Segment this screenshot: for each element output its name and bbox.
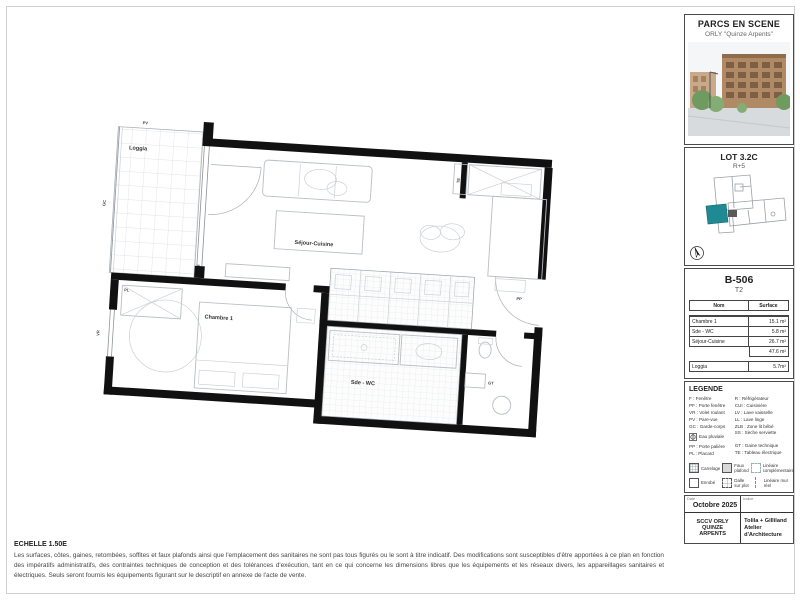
- surface-col-nom: Nom: [690, 301, 749, 310]
- washer: [492, 396, 511, 415]
- loggia-floor: [109, 127, 203, 278]
- north-arrow-icon: [689, 245, 705, 261]
- surface-row-sde: Sde - WC 5.8 m²: [689, 327, 789, 337]
- swatch-enrobe: Enrobé: [689, 477, 720, 488]
- coffee-table: [274, 211, 364, 254]
- unit-type: T2: [689, 287, 789, 294]
- plant-sketch: [419, 225, 461, 253]
- tag-pv: PV: [143, 120, 149, 125]
- door-arc-entry: [493, 277, 542, 326]
- bathroom-floor: [322, 326, 462, 424]
- surface-total-row: 47.6 m²: [689, 347, 789, 357]
- enrobe-swatch-icon: [689, 478, 699, 488]
- lot-title: LOT 3.2C: [688, 152, 790, 162]
- lineaire-mur-reel-swatch-icon: [755, 477, 758, 488]
- surface-total: 47.6 m²: [749, 347, 789, 357]
- indice-cell: Indice: [741, 496, 793, 512]
- surface-col-surface: Surface: [749, 301, 788, 310]
- unit-id: B-506: [689, 274, 789, 286]
- floor-plan-svg: PV GC VR Loggia: [82, 104, 582, 474]
- notes-block: ECHELLE 1.50E Les surfaces, côtes, gaine…: [14, 541, 664, 581]
- unit-panel: B-506 T2 Nom Surface Chambre 1 15.1 m² S…: [684, 268, 794, 379]
- wall-top: [202, 138, 552, 168]
- legend-ep: Eau pluviale: [689, 433, 732, 441]
- project-subtitle: ORLY "Quinze Arpents": [688, 31, 790, 38]
- project-header: PARCS EN SCENE ORLY "Quinze Arpents": [684, 14, 794, 145]
- surface-row-loggia: Loggia 5.7m²: [689, 361, 789, 372]
- tag-gc: GC: [101, 200, 106, 206]
- indice-label: Indice: [743, 497, 753, 501]
- sofa: [262, 160, 372, 203]
- architect-name: Tolila + Gilliland Atelier d'Architectur…: [744, 515, 790, 541]
- swatch-dalle-sur-plot: Dalle sur plot: [722, 477, 748, 488]
- surface-row-sejour: Séjour-Cuisine 26.7 m²: [689, 337, 789, 347]
- client-name: SCCV ORLY QUINZE ARPENTS: [688, 515, 737, 541]
- drawing-sheet: PV GC VR Loggia: [0, 0, 800, 600]
- tag-vr-chambre: VR: [95, 330, 100, 336]
- legend-col-left: F : Fenêtre PF : Porte fenêtre VR : Vole…: [689, 396, 732, 458]
- surface-table: Nom Surface Chambre 1 15.1 m² Sde - WC 5…: [689, 300, 789, 372]
- date-cell: Date Octobre 2025: [685, 496, 741, 512]
- floor-plan: PV GC VR Loggia: [82, 104, 582, 474]
- swatch-lineaire-mur-reel: Linéaire mur réel: [751, 477, 794, 488]
- disclaimer-text: Les surfaces, côtes, gaines, retombées, …: [14, 551, 664, 581]
- sidebar: PARCS EN SCENE ORLY "Quinze Arpents": [684, 14, 794, 546]
- door-arc-chambre: [284, 290, 314, 320]
- door-arc-wc: [494, 337, 524, 367]
- gt-duct: [465, 373, 486, 388]
- nightstand: [296, 308, 315, 323]
- dalle-sur-plot-swatch-icon: [722, 478, 732, 488]
- faux-plafond-swatch-icon: [722, 463, 732, 473]
- swatch-carrelage: Carrelage: [689, 463, 720, 473]
- door-arc-loggia: [208, 165, 261, 218]
- keyplan-unit-highlight: [706, 204, 728, 224]
- lot-panel: LOT 3.2C R+5: [684, 147, 794, 266]
- wall-right-lower: [528, 327, 543, 437]
- swatch-faux-plafond: Faux plafond: [722, 463, 748, 473]
- rainwater-icon: [689, 433, 697, 441]
- date-label: Date: [687, 497, 695, 501]
- dining-table: [488, 196, 547, 279]
- tag-te: TE: [456, 177, 461, 183]
- tag-gt: GT: [488, 380, 494, 385]
- scale-label: ECHELLE 1.50E: [14, 541, 664, 548]
- lot-level: R+5: [688, 163, 790, 170]
- room-label-loggia: Loggia: [129, 145, 148, 152]
- tag-pl: PL: [124, 287, 130, 292]
- tag-pp: PP: [516, 296, 522, 301]
- project-render-image: [688, 42, 790, 136]
- project-title: PARCS EN SCENE: [688, 19, 790, 29]
- legend-title: LEGENDE: [689, 386, 789, 393]
- title-block: Date Octobre 2025 Indice SCCV ORLY QUINZ…: [684, 495, 794, 544]
- lineaire-complementaire-swatch-icon: [751, 463, 761, 473]
- legend-panel: LEGENDE F : Fenêtre PF : Porte fenêtre V…: [684, 381, 794, 493]
- surface-row-chambre: Chambre 1 15.1 m²: [689, 316, 789, 327]
- carrelage-swatch-icon: [689, 463, 699, 473]
- room-label-sejour: Séjour-Cuisine: [294, 240, 333, 248]
- legend-swatches: Carrelage Faux plafond Linéaire compléme…: [689, 463, 789, 488]
- date-value: Octobre 2025: [688, 502, 742, 510]
- rug: [127, 298, 203, 374]
- legend-col-right: R : Réfrigérateur CUI : Cuisinière LV : …: [735, 396, 789, 458]
- swatch-lineaire-complementaire: Linéaire complémentaire: [751, 463, 794, 473]
- tv-unit: [225, 264, 290, 281]
- room-label-chambre: Chambre 1: [204, 314, 233, 322]
